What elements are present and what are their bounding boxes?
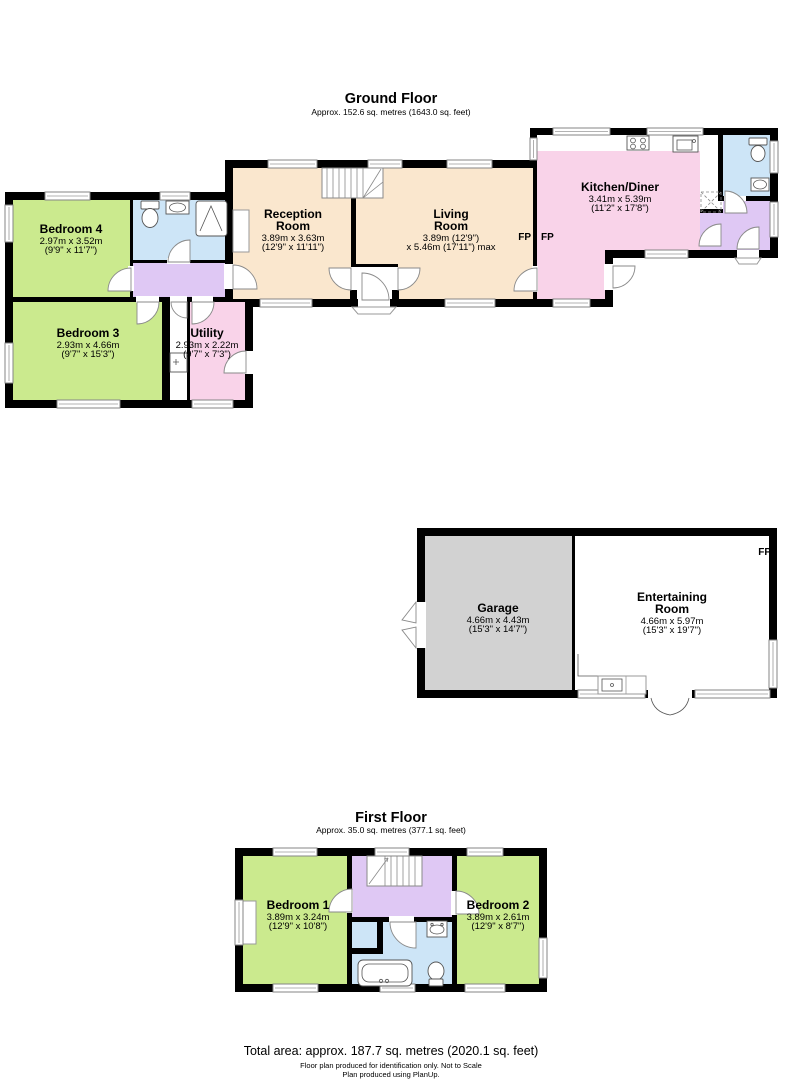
- chimney-breast: [233, 210, 249, 252]
- svg-text:Bedroom 2: Bedroom 2: [467, 898, 530, 912]
- ground-floor-title: Ground Floor: [345, 91, 438, 107]
- first-floor-subtitle: Approx. 35.0 sq. metres (377.1 sq. feet): [316, 825, 466, 835]
- fireplace-label-kitchen: FP: [541, 232, 554, 243]
- svg-text:Room: Room: [434, 219, 468, 233]
- wc-toilet-icon: [749, 138, 767, 162]
- svg-text:x 5.46m (17'11") max: x 5.46m (17'11") max: [407, 242, 496, 253]
- svg-text:Bedroom 1: Bedroom 1: [267, 898, 330, 912]
- svg-text:(9'9" x 11'7"): (9'9" x 11'7"): [45, 245, 97, 256]
- svg-text:Bedroom 3: Bedroom 3: [57, 326, 120, 340]
- floorplan-drawing: Ground Floor Approx. 152.6 sq. metres (1…: [0, 0, 785, 1080]
- wc-sink-icon: [751, 178, 769, 191]
- room-label-bedroom3: Bedroom 3 2.93m x 4.66m (9'7" x 15'3"): [57, 326, 120, 360]
- toilet-icon: [141, 201, 159, 228]
- room-label-bedroom2: Bedroom 2 3.89m x 2.61m (12'9" x 8'7"): [467, 898, 530, 932]
- room-kitchen-lower: [537, 250, 605, 299]
- svg-text:Room: Room: [655, 602, 689, 616]
- room-label-bedroom4: Bedroom 4 2.97m x 3.52m (9'9" x 11'7"): [40, 222, 103, 256]
- kitchen-sink-icon: [673, 136, 698, 152]
- rear-step: [735, 258, 761, 264]
- fireplace-label-living: FP: [518, 232, 531, 243]
- bath-icon: [358, 960, 412, 986]
- total-area-text: Total area: approx. 187.7 sq. metres (20…: [244, 1044, 539, 1058]
- french-doors: [648, 689, 692, 715]
- svg-text:Kitchen/Diner: Kitchen/Diner: [581, 180, 659, 194]
- first-floor-plan: First Floor Approx. 35.0 sq. metres (377…: [235, 810, 547, 992]
- shower-icon: [196, 201, 227, 236]
- fireplace-label-entertaining: FP: [758, 547, 771, 558]
- ground-floor-subtitle: Approx. 152.6 sq. metres (1643.0 sq. fee…: [311, 107, 470, 117]
- svg-text:(15'3" x 14'7"): (15'3" x 14'7"): [469, 624, 527, 635]
- svg-text:Bedroom 4: Bedroom 4: [40, 222, 103, 236]
- sink-icon: [427, 921, 447, 937]
- outbuilding-plan: Garage 4.66m x 4.43m (15'3" x 14'7") Ent…: [402, 528, 777, 715]
- garage-door: [402, 602, 426, 648]
- svg-text:(11'2" x 17'8"): (11'2" x 17'8"): [591, 203, 649, 214]
- room-label-bedroom1: Bedroom 1 3.89m x 3.24m (12'9" x 10'8"): [267, 898, 330, 932]
- svg-text:Utility: Utility: [190, 326, 224, 340]
- hob-icon: [627, 136, 649, 150]
- floorplan-page: Ground Floor Approx. 152.6 sq. metres (1…: [0, 0, 785, 1080]
- stairs-first: [367, 856, 422, 886]
- footer: Total area: approx. 187.7 sq. metres (20…: [244, 1044, 539, 1079]
- svg-text:Garage: Garage: [477, 601, 519, 615]
- stairs-ground: [322, 168, 383, 198]
- door-arc: [613, 266, 635, 288]
- ground-floor-plan: Ground Floor Approx. 152.6 sq. metres (1…: [5, 91, 778, 408]
- svg-text:(12'9" x 10'8"): (12'9" x 10'8"): [269, 921, 327, 932]
- room-hall: [133, 263, 225, 297]
- room-label-kitchen: Kitchen/Diner 3.41m x 5.39m (11'2" x 17'…: [581, 180, 659, 214]
- svg-text:(9'7" x 15'3"): (9'7" x 15'3"): [61, 349, 114, 360]
- svg-text:(9'7" x 7'3"): (9'7" x 7'3"): [183, 349, 231, 360]
- credit-text: Plan produced using PlanUp.: [342, 1070, 439, 1079]
- svg-text:(12'9" x 11'11"): (12'9" x 11'11"): [262, 242, 324, 253]
- disclaimer-text: Floor plan produced for identification o…: [300, 1061, 482, 1070]
- front-step: [352, 307, 396, 314]
- first-floor-title: First Floor: [355, 810, 427, 826]
- svg-text:Room: Room: [276, 219, 310, 233]
- toilet-icon: [428, 962, 444, 986]
- svg-text:(12'9" x 8'7"): (12'9" x 8'7"): [471, 921, 524, 932]
- chimney-breast: [243, 901, 256, 944]
- sink-icon: [166, 201, 189, 214]
- svg-text:(15'3" x 19'7"): (15'3" x 19'7"): [643, 625, 701, 636]
